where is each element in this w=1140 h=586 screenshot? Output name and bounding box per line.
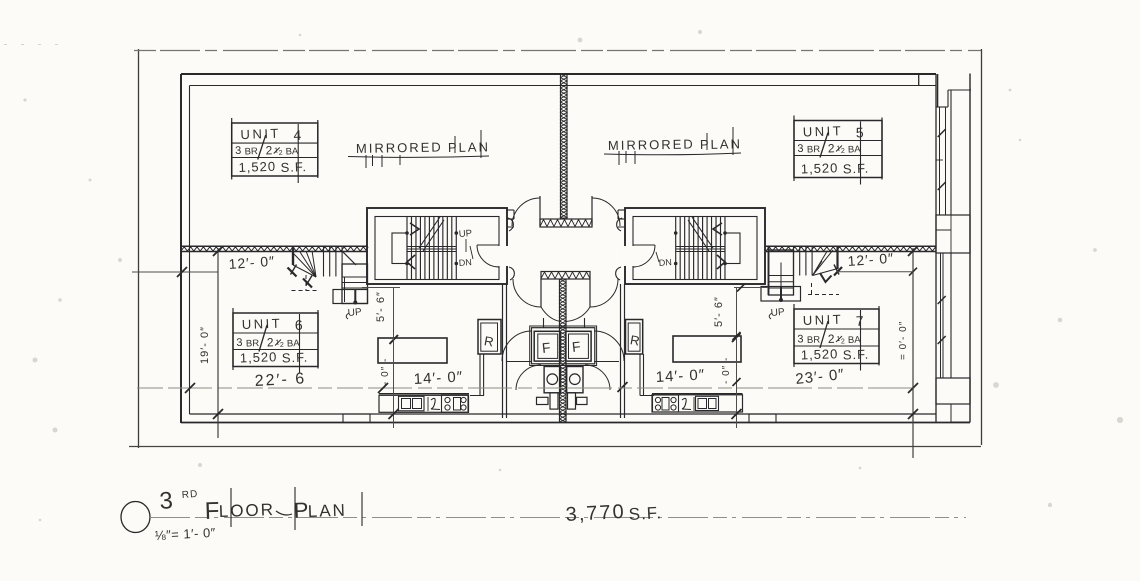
- svg-text:3: 3: [235, 145, 242, 157]
- svg-text:UNIT: UNIT: [242, 316, 283, 332]
- svg-text:3: 3: [236, 337, 243, 349]
- svg-text:2: 2: [265, 143, 272, 157]
- svg-text:12′- 0″: 12′- 0″: [847, 250, 895, 269]
- svg-text:4: 4: [293, 127, 302, 143]
- svg-text:3: 3: [797, 143, 804, 155]
- svg-text:BA: BA: [848, 144, 862, 155]
- svg-text:2: 2: [828, 332, 835, 346]
- svg-text:S.F.: S.F.: [628, 503, 662, 524]
- svg-text:S.F.: S.F.: [280, 159, 307, 175]
- svg-text:2: 2: [841, 338, 845, 345]
- svg-text:MIRRORED: MIRRORED: [608, 136, 695, 153]
- svg-text:PLAN: PLAN: [700, 136, 742, 152]
- svg-text:2: 2: [279, 150, 283, 157]
- svg-text:MIRRORED: MIRRORED: [356, 139, 443, 156]
- svg-text:S.F.: S.F.: [843, 161, 870, 177]
- svg-text:UP: UP: [458, 228, 472, 240]
- svg-text:S.F.: S.F.: [282, 350, 309, 366]
- svg-text:= 0′- 0″: = 0′- 0″: [898, 321, 909, 360]
- svg-text:3: 3: [797, 333, 804, 345]
- svg-text:14′- 0″: 14′- 0″: [655, 366, 705, 386]
- svg-text:2: 2: [267, 335, 274, 349]
- svg-text:F: F: [571, 338, 581, 355]
- svg-text:LOOR: LOOR: [218, 500, 275, 521]
- svg-text:BA: BA: [285, 146, 299, 157]
- svg-text:R: R: [629, 332, 641, 348]
- svg-text:1,520: 1,520: [238, 159, 276, 175]
- svg-text:5′- 6″: 5′- 6″: [375, 291, 387, 322]
- svg-text:DN: DN: [658, 257, 672, 268]
- svg-text:6: 6: [295, 317, 304, 333]
- svg-text:PLAN: PLAN: [448, 139, 490, 155]
- svg-text:UNIT: UNIT: [240, 126, 281, 142]
- svg-text:3,770: 3,770: [565, 501, 626, 526]
- svg-text:2: 2: [280, 342, 284, 349]
- svg-text:BR: BR: [244, 146, 258, 157]
- svg-text:1,520: 1,520: [801, 346, 839, 362]
- svg-text:⅛″= 1′- 0″: ⅛″= 1′- 0″: [154, 525, 216, 543]
- svg-text:BR: BR: [807, 144, 821, 155]
- svg-text:S.F.: S.F.: [843, 347, 870, 363]
- svg-text:LAN: LAN: [307, 501, 347, 521]
- svg-text:- 0″ -: - 0″ -: [380, 358, 391, 385]
- svg-text:F: F: [541, 339, 551, 356]
- svg-text:3: 3: [159, 487, 174, 515]
- svg-text:R: R: [483, 333, 495, 349]
- svg-text:5′- 6″: 5′- 6″: [713, 296, 725, 327]
- svg-text:BA: BA: [848, 335, 862, 346]
- svg-text:12′- 0″: 12′- 0″: [228, 253, 276, 272]
- svg-text:22′- 6: 22′- 6: [254, 370, 306, 390]
- svg-text:1,520: 1,520: [240, 349, 278, 365]
- svg-text:23′- 0″: 23′- 0″: [795, 366, 846, 388]
- svg-text:DN: DN: [458, 257, 472, 268]
- svg-text:14′- 0″: 14′- 0″: [413, 368, 463, 388]
- svg-text:2: 2: [828, 141, 835, 155]
- svg-text:2: 2: [841, 148, 845, 155]
- svg-text:- 0″ -: - 0″ -: [721, 357, 732, 384]
- svg-text:UP: UP: [770, 307, 785, 319]
- svg-text:UNIT: UNIT: [803, 123, 844, 139]
- svg-text:BR: BR: [246, 338, 260, 349]
- svg-text:BR: BR: [807, 335, 821, 346]
- svg-text:RD: RD: [181, 489, 198, 501]
- svg-text:UNIT: UNIT: [803, 312, 844, 328]
- svg-text:5: 5: [856, 124, 865, 140]
- svg-text:BA: BA: [287, 338, 301, 349]
- svg-text:7: 7: [856, 313, 865, 329]
- svg-text:19′- 0″: 19′- 0″: [199, 326, 211, 364]
- svg-text:UP: UP: [347, 307, 362, 319]
- svg-text:1,520: 1,520: [801, 160, 839, 176]
